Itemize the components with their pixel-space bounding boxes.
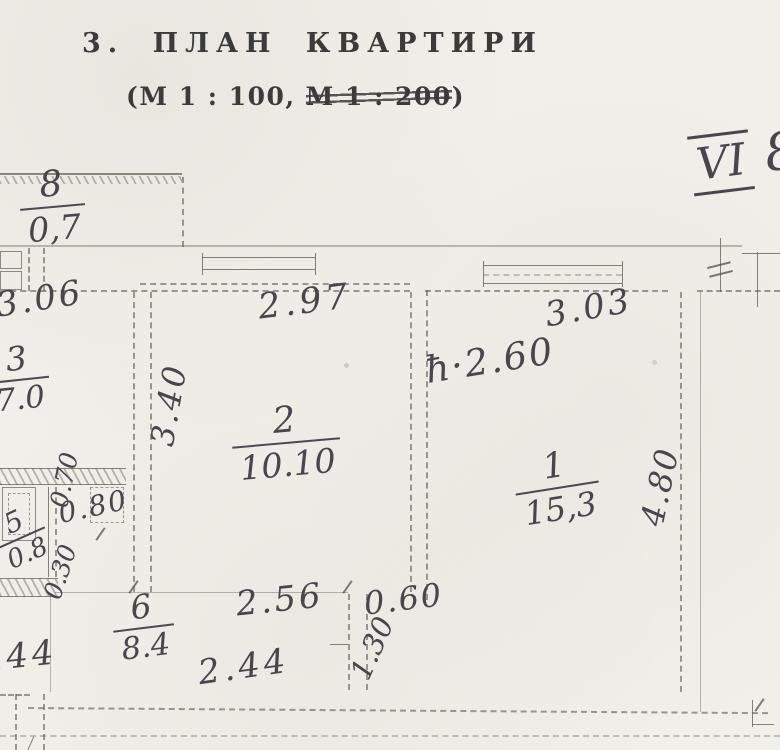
room2-left-wall-outer <box>133 292 135 592</box>
stamp-number: 8 <box>761 121 780 185</box>
room1-right-wall-inner <box>680 292 682 692</box>
window-room2-inner-line <box>202 269 315 270</box>
room-8-area: 0,7 <box>20 203 88 249</box>
room-2-area: 10.10 <box>232 437 343 486</box>
dim-2-44: 2.44 <box>196 644 292 692</box>
sheet-stamp: VI 8 <box>687 124 780 191</box>
paper-speck <box>652 360 657 365</box>
page-title: 3. ПЛАН КВАРТИРИ <box>82 28 543 59</box>
stamp-roman-numeral: VI <box>687 129 755 196</box>
room-3-area: 7.0 <box>0 375 53 418</box>
room2-right-wall <box>410 292 412 592</box>
bottom-left-stub-a <box>15 694 17 750</box>
dim-3-06: 3.06 <box>0 275 86 324</box>
scale-struck-value: М 1 : 200 <box>306 82 452 111</box>
window-room2-outer-line <box>202 257 315 258</box>
room-8-number: 8 <box>17 163 85 208</box>
window-room2-right-jamb <box>315 253 316 275</box>
room-6-label: 6 8.4 <box>109 587 178 668</box>
top-inner-wall-mid <box>425 290 668 292</box>
balcony-side-wall <box>182 177 184 247</box>
room1-left-wall <box>426 290 428 600</box>
room-6-area: 8.4 <box>113 623 178 667</box>
dim-1-30-vertical: 1.30 <box>345 613 399 684</box>
scale-suffix: ) <box>452 82 465 111</box>
paper-speck <box>344 363 349 368</box>
room-3-label: 3 7.0 <box>0 339 53 419</box>
left-wall-detail-box-a <box>0 251 22 269</box>
room-8-label: 8 0,7 <box>17 163 89 248</box>
dim-4-80-vertical: 4.80 <box>636 445 685 530</box>
scale-prefix: (М 1 : 100, <box>126 82 296 111</box>
window-room1-outer-line <box>483 265 622 266</box>
room-1-label: 1 15,3 <box>509 442 605 532</box>
door-stub-connector <box>330 644 348 645</box>
top-inner-wall-right <box>697 290 780 292</box>
bottom-right-corner-vertical <box>752 700 753 727</box>
top-right-corner-horizontal <box>742 253 780 254</box>
dim-height-2-60: ħ·2.60 <box>423 332 557 391</box>
bottom-right-tick <box>754 698 764 711</box>
scale-note: (М 1 : 100,М 1 : 200) <box>126 82 465 111</box>
dim-3-40-vertical: 3.40 <box>146 361 194 449</box>
junction-tick <box>95 527 105 540</box>
window-room1-mid-line <box>483 274 622 276</box>
dim-2-97: 2.97 <box>256 278 354 326</box>
door-stub-wall-a <box>348 594 350 690</box>
bottom-edge-line <box>0 735 780 737</box>
bottom-left-stub-b <box>43 694 45 750</box>
top-right-corner-vertical <box>757 252 758 307</box>
bottom-right-corner-horizontal <box>752 724 774 725</box>
stray-pencil-mark <box>27 736 34 750</box>
dim-2-56: 2.56 <box>234 579 325 624</box>
window-room1-left-jamb <box>483 261 484 287</box>
window-room1-inner-line <box>483 283 622 284</box>
top-outer-wall <box>0 245 742 247</box>
room-2-label: 2 10.10 <box>229 397 343 486</box>
scanned-floor-plan-page: 3. ПЛАН КВАРТИРИ (М 1 : 100,М 1 : 200) V… <box>0 0 780 750</box>
room1-right-wall-outer <box>700 292 701 712</box>
window-room2-left-jamb <box>202 253 203 275</box>
bottom-outer-wall <box>28 707 768 714</box>
